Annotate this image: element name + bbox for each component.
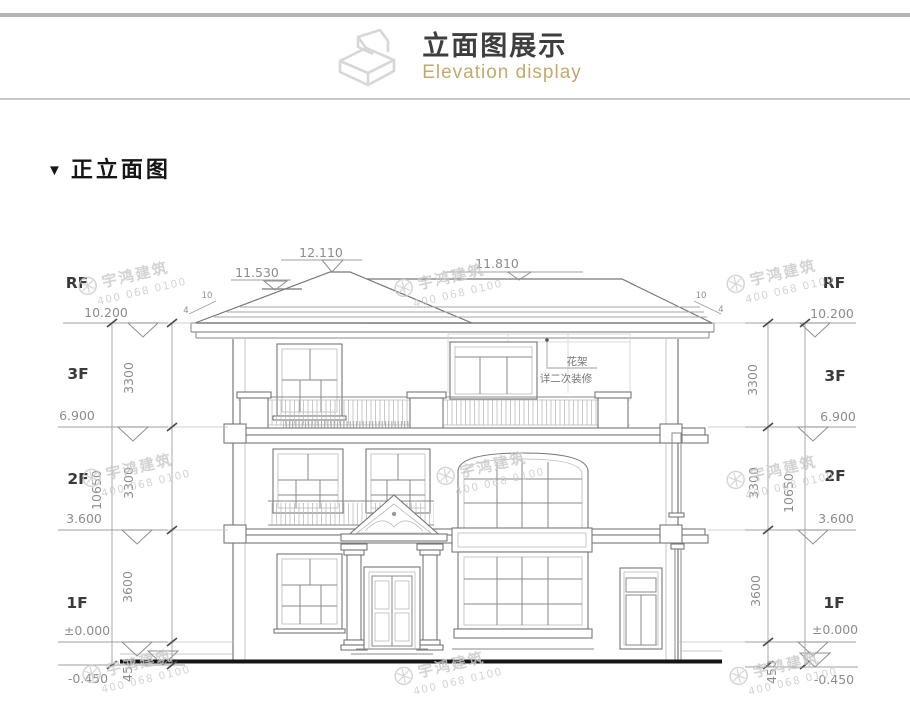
floor-label-1f-right: 1F	[823, 594, 844, 612]
floor-label-3f-left: 3F	[67, 365, 88, 383]
window-1f-left	[274, 554, 345, 633]
window-3f-middle	[450, 342, 537, 399]
floor-label-3f-right: 3F	[824, 367, 845, 385]
level-10200-left: 10.200	[84, 305, 128, 320]
slope-run-left: 4	[183, 306, 188, 316]
level-0000-left-mark: 3.600	[66, 511, 102, 526]
level-zero-left: ±0.000	[64, 623, 110, 638]
page-subtitle: Elevation display	[422, 61, 582, 85]
side-door-1f	[620, 568, 662, 649]
page-title: 立面图展示	[422, 31, 582, 61]
level-3600-right: 3.600	[818, 511, 854, 526]
entrance-column-right	[417, 544, 443, 650]
entrance-column-left	[341, 544, 367, 650]
level-6900-right: 6.900	[820, 409, 856, 424]
note-line1: 花架	[567, 355, 588, 368]
triangle-marker-icon: ▼	[47, 162, 62, 179]
section-title: ▼正立面图	[47, 157, 910, 184]
floor-label-1f-left: 1F	[66, 594, 87, 612]
ground-line	[120, 651, 722, 662]
level-zero-right: ±0.000	[812, 622, 858, 637]
slope-rise-left: 10	[202, 291, 213, 301]
slope-run-right: 4	[718, 305, 723, 315]
house-box-icon	[328, 27, 404, 89]
dim-3300-a-left: 3300	[121, 362, 136, 394]
dim-3300-a-right: 3300	[745, 364, 760, 396]
front-elevation-drawing: 宇鸿建筑 400 068 0100	[0, 211, 910, 724]
dim-3600-right: 3600	[748, 575, 763, 607]
page-header: 立面图展示 Elevation display	[0, 17, 910, 100]
balcony-pillar	[407, 392, 446, 429]
strip-window-2f	[669, 433, 684, 517]
mark-12110: 12.110	[299, 245, 343, 260]
dim-3600-left: 3600	[120, 571, 135, 603]
slope-rise-right: 10	[696, 291, 707, 301]
balcony-pillar	[595, 392, 631, 429]
section-title-label: 正立面图	[71, 157, 171, 182]
mark-11530: 11.530	[235, 265, 279, 280]
level-10200-right: 10.200	[810, 306, 854, 321]
note-line2: 详二次装修	[540, 372, 593, 385]
spandrel-panel	[452, 528, 592, 552]
level-6900-left: 6.900	[59, 408, 95, 423]
